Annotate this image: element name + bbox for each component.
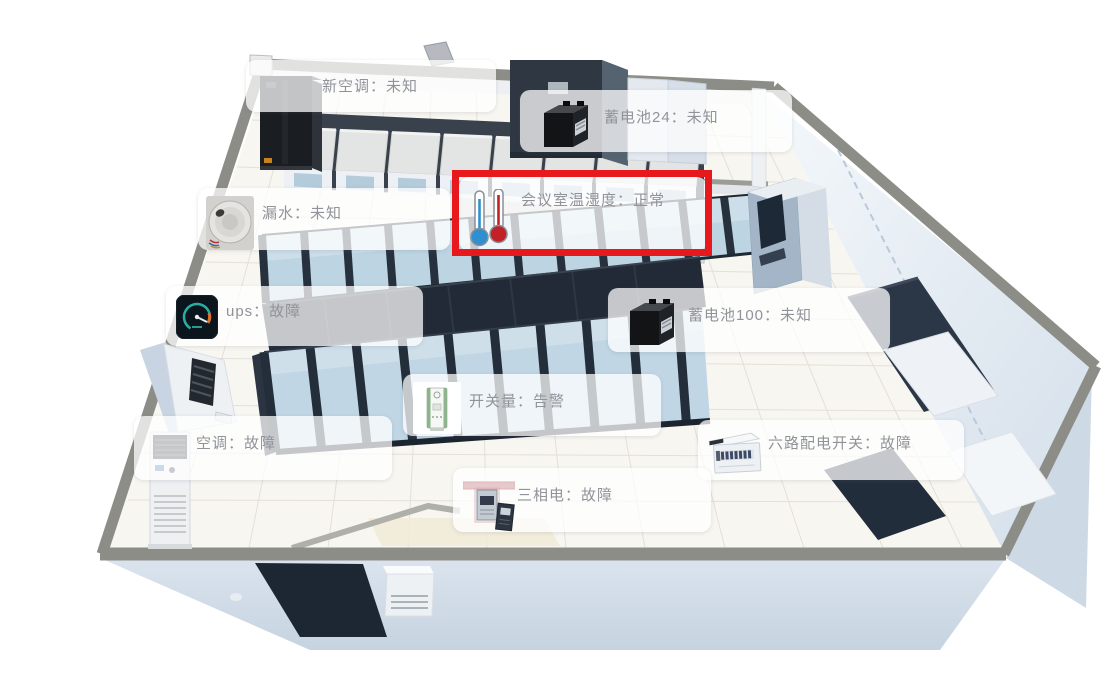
label-ac[interactable]: 空调：故障 bbox=[134, 416, 392, 480]
label-battery24[interactable]: 蓄电池24：未知 bbox=[520, 90, 792, 152]
wall-vent-box bbox=[383, 566, 434, 616]
label-ups[interactable]: ups：故障 bbox=[166, 286, 423, 346]
label-text: 蓄电池24：未知 bbox=[604, 106, 719, 127]
label-text: 三相电：故障 bbox=[517, 484, 613, 505]
label-text: 蓄电池100：未知 bbox=[688, 304, 812, 325]
tall-cabinet bbox=[748, 178, 832, 294]
label-water-leak[interactable]: 漏水：未知 bbox=[198, 188, 450, 250]
label-text: 空调：故障 bbox=[196, 432, 276, 453]
three-phase-meter-icon bbox=[463, 476, 515, 534]
io-switch-device-icon bbox=[413, 382, 461, 434]
ups-gauge-icon bbox=[176, 295, 218, 339]
label-battery100[interactable]: 蓄电池100：未知 bbox=[608, 288, 890, 352]
label-text: 会议室温湿度：正常 bbox=[521, 189, 665, 210]
label-text: 六路配电开关：故障 bbox=[768, 432, 912, 453]
label-three-phase[interactable]: 三相电：故障 bbox=[453, 468, 711, 532]
label-text: 开关量：告警 bbox=[469, 390, 565, 411]
wall-dot bbox=[230, 593, 242, 601]
front-wall-exterior bbox=[100, 558, 1006, 650]
leak-sensor-icon bbox=[206, 196, 254, 250]
label-text: ups：故障 bbox=[226, 300, 301, 321]
label-distribution-switch[interactable]: 六路配电开关：故障 bbox=[698, 420, 964, 480]
label-new-ac[interactable]: 新空调：未知 bbox=[246, 60, 496, 112]
label-text: 新空调：未知 bbox=[322, 75, 418, 96]
machine-room-3d-viewport[interactable]: 新空调：未知 蓄电池24：未知 会议室温湿度：正常 漏水：未知 bbox=[0, 0, 1101, 674]
battery-icon bbox=[622, 298, 680, 348]
label-io-switch[interactable]: 开关量：告警 bbox=[403, 374, 661, 436]
thermometer-pair-icon bbox=[469, 189, 511, 247]
label-meeting-room-temp-humidity[interactable]: 会议室温湿度：正常 bbox=[459, 177, 707, 251]
label-text: 漏水：未知 bbox=[262, 202, 342, 223]
distribution-box-icon bbox=[708, 432, 764, 476]
battery-icon bbox=[536, 100, 594, 150]
